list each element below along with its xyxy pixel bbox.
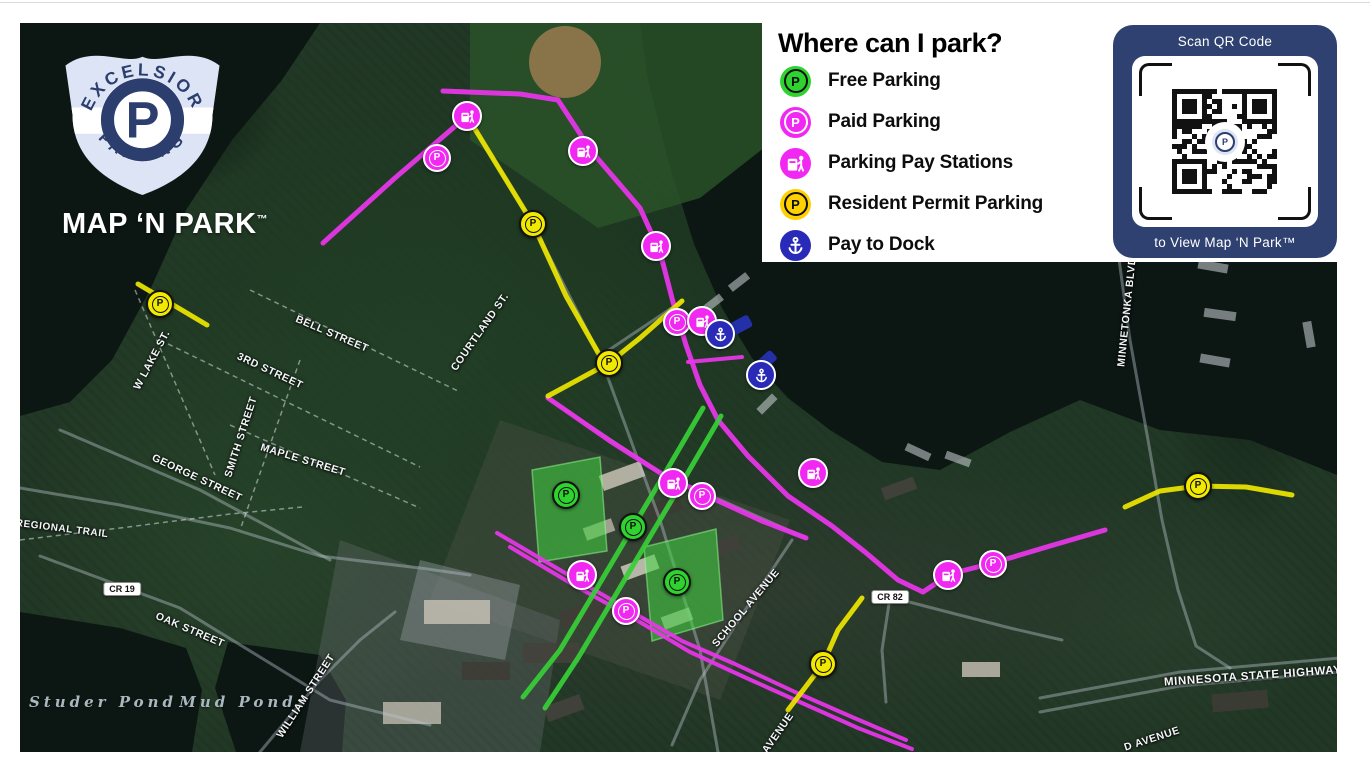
paid-parking-icon: P [780,107,811,138]
trademark-symbol: ™ [257,213,269,225]
resident-parking-marker[interactable]: P [809,650,837,678]
pond-label: Mud Pond [179,693,297,711]
road-badge: CR 82 [871,590,909,604]
road-badge: CR 19 [103,582,141,596]
building [881,477,917,501]
pond-label: Studer Pond [29,693,177,711]
legend-item-paid: PPaid Parking [780,105,941,139]
legend-item-free: PFree Parking [780,64,941,98]
excelsior-parking-logo: P EXCELSIOR PARKING MAP ‘N PARK™ [55,34,315,207]
dock-parking-icon [780,230,811,261]
qr-code: P [1132,56,1318,227]
resident-parking-marker[interactable]: P [519,210,547,238]
building [462,662,510,680]
free-parking-marker[interactable]: P [663,568,691,596]
free-parking-marker[interactable]: P [619,513,647,541]
paystation-parking-marker[interactable] [658,468,688,498]
paystation-parking-marker[interactable] [798,458,828,488]
paid-parking-marker[interactable]: P [423,144,451,172]
dock-parking-marker[interactable] [746,360,776,390]
resident-parking-marker[interactable]: P [595,349,623,377]
legend-label: Free Parking [828,70,941,92]
qr-bracket-icon [1139,187,1172,220]
legend-label: Resident Permit Parking [828,193,1043,215]
ball-field [529,26,601,98]
qr-panel: Scan QR Code P to View Map ‘N Park™ [1113,25,1337,258]
free-parking-marker[interactable]: P [552,481,580,509]
legend-item-dock: Pay to Dock [780,228,935,262]
dock-parking-marker[interactable] [705,319,735,349]
legend-label: Pay to Dock [828,234,935,256]
paystation-parking-marker[interactable] [641,231,671,261]
free-parking-lot [532,457,607,562]
qr-bracket-icon [1278,187,1311,220]
dock [756,393,777,414]
building [1211,690,1268,713]
qr-top-label: Scan QR Code [1113,34,1337,49]
legend-label: Paid Parking [828,111,941,133]
badge-letter: P [126,91,160,148]
qr-bottom-label: to View Map ‘N Park™ [1113,235,1337,250]
route-paid [323,116,467,243]
qr-bracket-icon [1139,63,1172,96]
building [424,600,490,624]
route-paid [688,357,742,362]
legend-title: Where can I park? [778,28,1002,59]
paid-parking-marker[interactable]: P [612,597,640,625]
paystation-parking-marker[interactable] [567,560,597,590]
qr-center-logo-icon: P [1205,122,1245,162]
page-divider [0,2,1370,3]
building [962,662,1000,677]
paystation-parking-marker[interactable] [452,101,482,131]
paid-parking-marker[interactable]: P [688,482,716,510]
legend-item-paystation: Parking Pay Stations [780,146,1013,180]
parking-badge-icon: P EXCELSIOR PARKING [55,34,230,202]
qr-bracket-icon [1278,63,1311,96]
legend-label: Parking Pay Stations [828,152,1013,174]
resident-parking-icon: P [780,189,811,220]
resident-parking-marker[interactable]: P [146,290,174,318]
paystation-parking-marker[interactable] [568,136,598,166]
paystation-parking-marker[interactable] [933,560,963,590]
paystation-parking-icon [780,148,811,179]
legend-item-resident: PResident Permit Parking [780,187,1043,221]
resident-parking-marker[interactable]: P [1184,472,1212,500]
map-n-park-wordmark: MAP ‘N PARK™ [62,208,268,241]
free-parking-icon: P [780,66,811,97]
paid-parking-marker[interactable]: P [979,550,1007,578]
